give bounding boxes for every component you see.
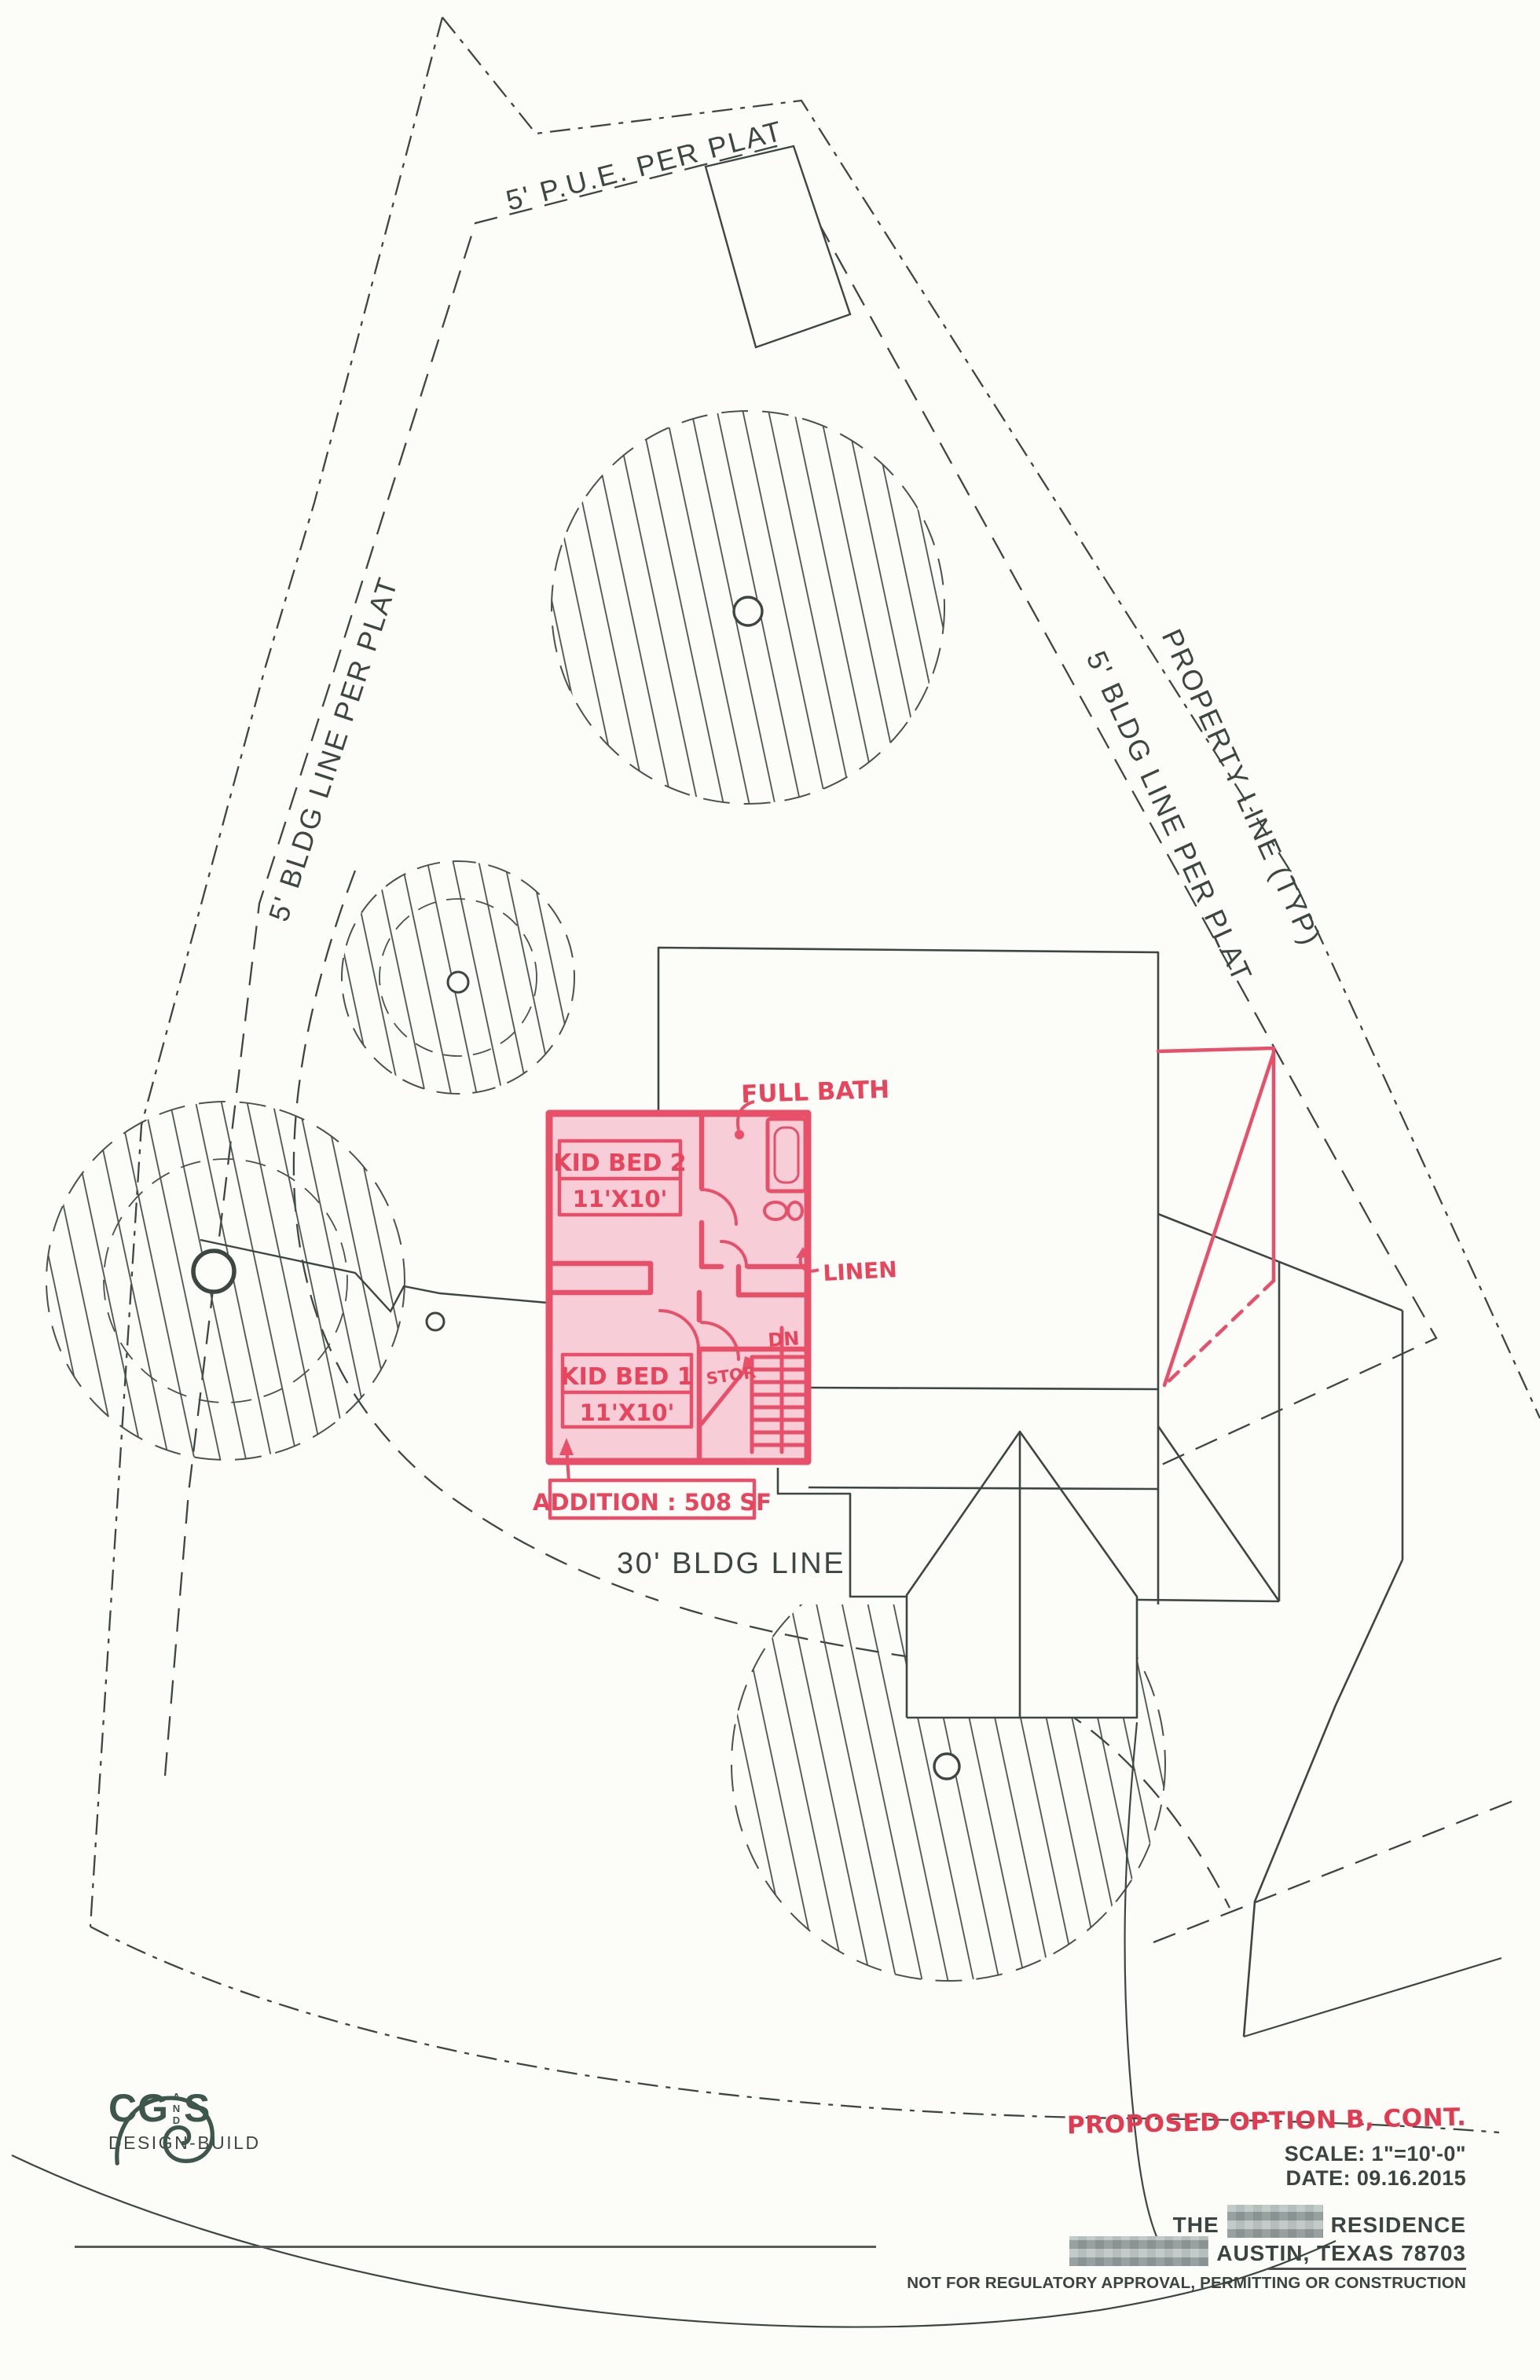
room2-size: 11'X10' (573, 1186, 668, 1212)
date-note: DATE: 09.16.2015 (1285, 2166, 1466, 2191)
footer-rule (75, 2246, 876, 2248)
room1-size: 11'X10' (580, 1399, 675, 1426)
residence-line: THE RESIDENCE (1173, 2205, 1466, 2238)
addition-note: ADDITION : 508 SF (533, 1489, 772, 1516)
disclaimer: NOT FOR REGULATORY APPROVAL, PERMITTING … (907, 2274, 1466, 2293)
redacted-name (1227, 2205, 1323, 2238)
site-plan-drawing: 5' P.U.E. PER PLAT 5' BLDG LINE PER PLAT… (0, 0, 1540, 2380)
stair-dn-label: DN (767, 1327, 800, 1351)
tree-bottom-trunk (934, 1754, 959, 1779)
residence-suffix: RESIDENCE (1331, 2213, 1466, 2238)
residence-prefix: THE (1173, 2213, 1219, 2238)
bldg-line-right-label: 5' BLDG LINE PER PLAT (1080, 646, 1259, 988)
room1-name: KID BED 1 (560, 1363, 693, 1391)
titleblock-rule (1268, 2268, 1466, 2270)
tree-top-trunk (734, 597, 762, 625)
roof-annotation (1158, 1048, 1274, 1385)
tree-left-trunk (193, 1251, 234, 1292)
city-line: AUSTIN, TEXAS 78703 (1069, 2236, 1466, 2266)
linen-label: LINEN (823, 1256, 898, 1286)
bath-label: FULL BATH (741, 1076, 890, 1109)
redacted-address (1069, 2236, 1208, 2266)
logo-spiral-icon (108, 2088, 226, 2167)
room2-name: KID BED 2 (553, 1150, 686, 1177)
small-trunk (427, 1313, 444, 1330)
bldg-30-label: 30' BLDG LINE (617, 1547, 845, 1580)
site-plan-sheet: 5' P.U.E. PER PLAT 5' BLDG LINE PER PLAT… (0, 0, 1540, 2380)
tree-mid-left-trunk (448, 972, 468, 992)
bldg-line-left-label: 5' BLDG LINE PER PLAT (262, 572, 405, 925)
shed-outline (706, 146, 850, 347)
house-right-wing (1158, 1214, 1402, 2037)
cgs-logo: CG AND S DESIGN-BUILD (108, 2088, 289, 2154)
driveway-right-edge (1244, 1958, 1501, 2037)
city-text: AUSTIN, TEXAS 78703 (1216, 2241, 1466, 2266)
property-line-label: PROPERTY LINE (TYP) (1156, 624, 1328, 951)
scale-note: SCALE: 1"=10'-0" (1285, 2142, 1466, 2166)
bath-leader-dot (735, 1130, 744, 1139)
